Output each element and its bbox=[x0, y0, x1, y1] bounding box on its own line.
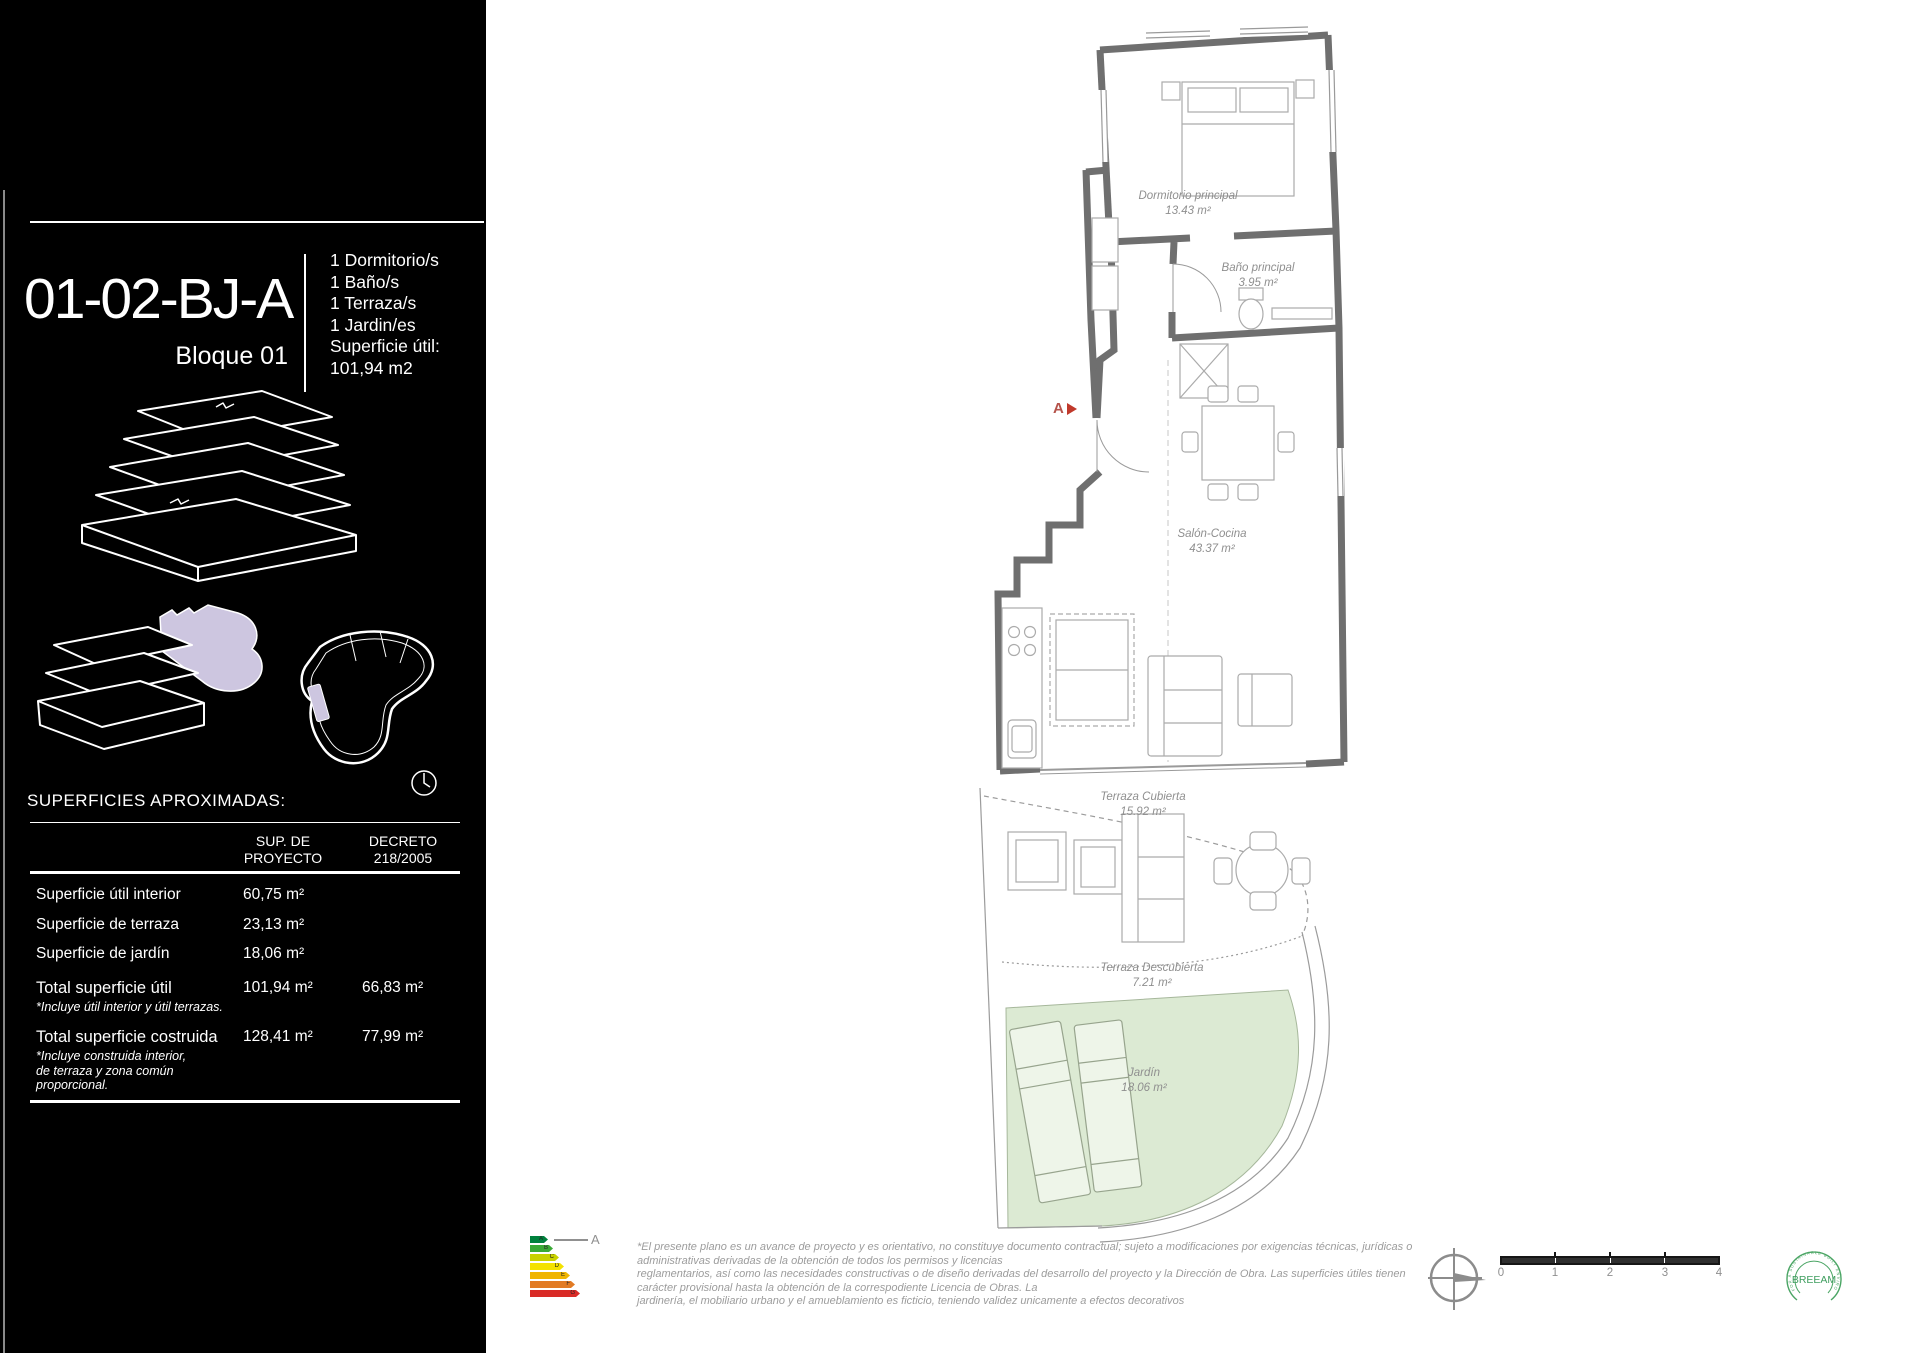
room-label-bano: Baño principal 3.95 m² bbox=[1168, 261, 1348, 291]
info-panel: 01-02-BJ-A Bloque 01 1 Dormitorio/s 1 Ba… bbox=[0, 0, 486, 1353]
col-header-decreto: DECRETO 218/2005 bbox=[348, 833, 458, 866]
energy-arrow-g: G bbox=[530, 1290, 580, 1297]
row-terraza-proyecto: 23,13 m² bbox=[243, 916, 304, 934]
north-compass-icon bbox=[1418, 1244, 1490, 1316]
unit-code: 01-02-BJ-A bbox=[24, 268, 292, 330]
total-construida-proyecto: 128,41 m² bbox=[243, 1028, 313, 1046]
energy-letter-e: E bbox=[561, 1272, 565, 1278]
feature-terrazas: 1 Terraza/s bbox=[330, 293, 440, 315]
breeam-label: BREEAM bbox=[1792, 1274, 1836, 1286]
surfaces-heading: SUPERFICIES APROXIMADAS: bbox=[27, 791, 286, 811]
terrace-armchair bbox=[1008, 832, 1066, 890]
room-label-salon: Salón-Cocina 43.37 m² bbox=[1122, 527, 1302, 557]
site-compass-icon bbox=[412, 771, 436, 795]
energy-letter-c: C bbox=[550, 1254, 554, 1260]
scale-bar-bar bbox=[1500, 1256, 1720, 1265]
site-plan-outline bbox=[302, 631, 433, 763]
section-marker-letter: A bbox=[1053, 400, 1064, 417]
total-construida-note: *Incluye construida interior, de terraza… bbox=[36, 1049, 186, 1093]
room-label-terraza-descubierta: Terraza Descubierta 7.21 m² bbox=[1062, 961, 1242, 991]
disclaimer-text: *El presente plano es un avance de proye… bbox=[637, 1241, 1437, 1309]
page-edge-line bbox=[3, 190, 5, 1353]
armchair bbox=[1238, 674, 1292, 726]
energy-letter-a: A bbox=[539, 1236, 543, 1242]
energy-arrow-e: E bbox=[530, 1272, 570, 1279]
total-construida-label: Total superficie costruida bbox=[36, 1028, 218, 1047]
energy-indicator-line bbox=[554, 1239, 588, 1241]
unit-features: 1 Dormitorio/s 1 Baño/s 1 Terraza/s 1 Ja… bbox=[330, 250, 440, 379]
row-terraza-label: Superficie de terraza bbox=[36, 916, 179, 934]
scale-tick-0: 0 bbox=[1498, 1267, 1504, 1279]
scale-bar: 0 1 2 3 4 bbox=[1500, 1252, 1722, 1282]
energy-rating-icon: A B C D E F G A bbox=[530, 1236, 640, 1316]
superficie-util-label: Superficie útil: bbox=[330, 336, 440, 358]
scale-tick-1: 1 bbox=[1552, 1267, 1558, 1279]
room-label-terraza-cubierta: Terraza Cubierta 15.92 m² bbox=[1053, 790, 1233, 820]
terrace-sofa bbox=[1122, 814, 1184, 942]
row-jardin-proyecto: 18,06 m² bbox=[243, 945, 304, 963]
feature-banos: 1 Baño/s bbox=[330, 272, 440, 294]
energy-arrow-c: C bbox=[530, 1254, 559, 1261]
table-bottom-rule bbox=[30, 1100, 460, 1103]
scale-tick-2: 2 bbox=[1607, 1267, 1613, 1279]
terrace-table bbox=[1236, 844, 1288, 896]
energy-arrow-f: F bbox=[530, 1281, 575, 1288]
energy-arrow-a: A bbox=[530, 1236, 548, 1243]
feature-jardines: 1 Jardin/es bbox=[330, 315, 440, 337]
total-util-decreto: 66,83 m² bbox=[362, 979, 423, 997]
breeam-logo: FOR A SUSTAINABLE BUILT ENVIRONMENT BREE… bbox=[1768, 1238, 1860, 1330]
table-top-rule bbox=[30, 822, 460, 823]
scale-tick-4: 4 bbox=[1716, 1267, 1722, 1279]
building-3d-lower bbox=[38, 627, 204, 749]
energy-arrow-d: D bbox=[530, 1263, 564, 1270]
total-util-proyecto: 101,94 m² bbox=[243, 979, 313, 997]
building-illustration bbox=[20, 385, 470, 810]
total-util-label: Total superficie útil bbox=[36, 979, 172, 998]
scale-tick-3: 3 bbox=[1662, 1267, 1668, 1279]
superficie-util-value: 101,94 m2 bbox=[330, 358, 440, 380]
block-label: Bloque 01 bbox=[88, 342, 288, 371]
energy-letter-b: B bbox=[544, 1245, 548, 1251]
section-marker-arrow-icon bbox=[1067, 403, 1077, 415]
plan-sheet: 01-02-BJ-A Bloque 01 1 Dormitorio/s 1 Ba… bbox=[0, 0, 1920, 1353]
row-util-interior-proyecto: 60,75 m² bbox=[243, 886, 304, 904]
feature-dormitorios: 1 Dormitorio/s bbox=[330, 250, 440, 272]
row-jardin-label: Superficie de jardín bbox=[36, 945, 170, 963]
energy-arrow-b: B bbox=[530, 1245, 553, 1252]
title-rule bbox=[30, 221, 484, 223]
energy-letter-f: F bbox=[566, 1281, 570, 1287]
bath-shelf bbox=[1272, 308, 1332, 319]
energy-letter-g: G bbox=[570, 1290, 575, 1296]
building-3d bbox=[82, 391, 356, 581]
total-construida-decreto: 77,99 m² bbox=[362, 1028, 423, 1046]
glass-front bbox=[1040, 763, 1306, 774]
dining-table bbox=[1202, 406, 1274, 480]
sofa bbox=[1148, 656, 1222, 756]
energy-letter-d: D bbox=[555, 1263, 559, 1269]
total-util-note: *Incluye útil interior y útil terrazas. bbox=[36, 1000, 223, 1015]
room-label-dormitorio: Dormitorio principal 13.43 m² bbox=[1098, 189, 1278, 219]
row-util-interior-label: Superficie útil interior bbox=[36, 886, 181, 904]
energy-indicator-letter: A bbox=[591, 1232, 600, 1247]
room-label-jardin: Jardín 18.06 m² bbox=[1054, 1066, 1234, 1096]
section-marker: A bbox=[1053, 400, 1077, 417]
table-header-rule bbox=[30, 871, 460, 874]
unit-info-divider bbox=[304, 254, 306, 392]
col-header-proyecto: SUP. DE PROYECTO bbox=[228, 833, 338, 866]
